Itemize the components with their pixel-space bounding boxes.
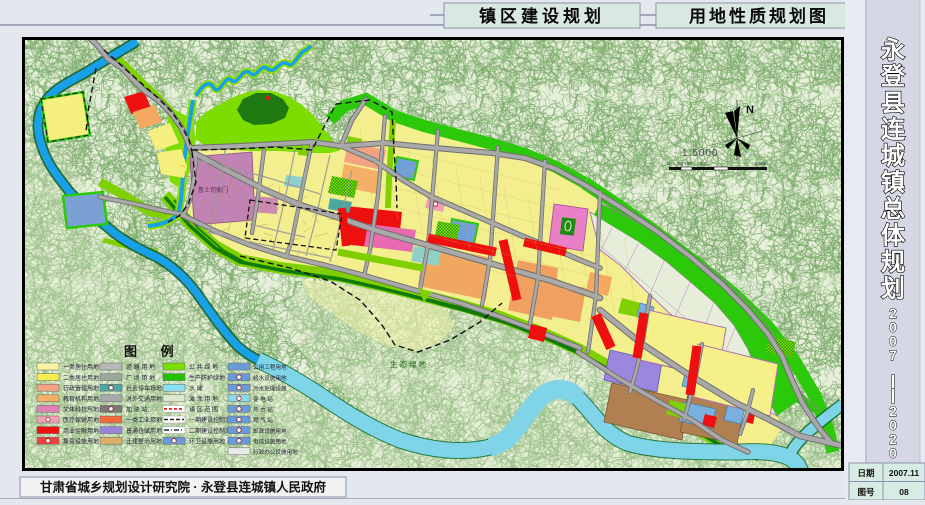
- svg-text:环卫设施用地: 环卫设施用地: [189, 437, 225, 445]
- svg-text:给水设施用地: 给水设施用地: [253, 374, 287, 382]
- svg-text:电信设施用地: 电信设施用地: [253, 437, 287, 445]
- svg-text:登: 登: [880, 64, 906, 91]
- svg-text:加 油 站: 加 油 站: [126, 406, 147, 414]
- svg-text:镇区建设规划: 镇区建设规划: [479, 6, 605, 26]
- svg-text:0: 0: [889, 320, 897, 335]
- svg-text:日期: 日期: [857, 468, 875, 478]
- svg-text:2: 2: [889, 432, 897, 447]
- svg-text:N: N: [746, 104, 754, 116]
- svg-text:0: 0: [889, 418, 897, 433]
- svg-text:划: 划: [881, 276, 905, 303]
- svg-text:迁建整治用地: 迁建整治用地: [126, 437, 162, 445]
- svg-text:二类居住用地: 二类居住用地: [63, 374, 99, 382]
- svg-text:水 域: 水 域: [189, 384, 203, 392]
- svg-text:2: 2: [889, 404, 897, 419]
- svg-text:0: 0: [889, 446, 897, 461]
- svg-text:镇 区 范 围: 镇 区 范 围: [189, 406, 218, 414]
- svg-text:滩 涂 用 地: 滩 涂 用 地: [189, 395, 218, 403]
- svg-text:变 电 站: 变 电 站: [253, 395, 273, 403]
- svg-text:200: 200: [700, 161, 708, 166]
- svg-text:生产防护绿地: 生产防护绿地: [189, 374, 225, 382]
- svg-text:热 力 站: 热 力 站: [253, 406, 273, 414]
- svg-text:400m: 400m: [755, 161, 767, 166]
- svg-text:|: |: [891, 387, 895, 404]
- svg-text:教育机构用地: 教育机构用地: [63, 395, 99, 403]
- svg-text:公用工程用地: 公用工程用地: [253, 363, 287, 371]
- svg-text:行政办公设施用地: 行政办公设施用地: [253, 448, 298, 456]
- svg-text:社会停车场地: 社会停车场地: [126, 384, 162, 392]
- svg-text:燃 气 站: 燃 气 站: [253, 416, 273, 424]
- svg-text:一类居住用地: 一类居住用地: [63, 363, 99, 371]
- svg-text:2007.11: 2007.11: [889, 468, 920, 478]
- svg-text:公 共 绿 地: 公 共 绿 地: [189, 363, 218, 371]
- svg-text:道 路 用 地: 道 路 用 地: [126, 363, 155, 371]
- svg-text:对外交通用地: 对外交通用地: [126, 395, 162, 403]
- svg-text:县: 县: [881, 90, 905, 117]
- svg-text:鲁土司衙门: 鲁土司衙门: [198, 186, 228, 194]
- svg-text:一类工业用地: 一类工业用地: [126, 416, 162, 424]
- svg-text:甘肃省城乡规划设计研究院 · 永登县连城镇人民政府: 甘肃省城乡规划设计研究院 · 永登县连城镇人民政府: [40, 480, 327, 495]
- svg-text:邮政设施用地: 邮政设施用地: [253, 427, 287, 435]
- svg-text:总: 总: [881, 195, 905, 223]
- svg-text:污水处理设施: 污水处理设施: [253, 384, 287, 392]
- svg-text:0: 0: [889, 334, 897, 349]
- svg-text:图号: 图号: [857, 487, 875, 497]
- svg-text:1:5000: 1:5000: [682, 148, 719, 159]
- svg-text:行政管理用地: 行政管理用地: [63, 384, 99, 392]
- svg-text:文体科技用地: 文体科技用地: [63, 406, 99, 414]
- svg-text:图 例: 图 例: [124, 344, 184, 359]
- svg-text:普通仓储用地: 普通仓储用地: [126, 427, 162, 435]
- svg-text:生态绿地: 生态绿地: [390, 359, 428, 369]
- svg-text:城: 城: [881, 142, 905, 170]
- svg-text:医疗保健用地: 医疗保健用地: [63, 416, 99, 424]
- svg-text:50 100: 50 100: [678, 161, 692, 166]
- svg-text:体: 体: [881, 223, 906, 250]
- svg-text:镇: 镇: [881, 170, 905, 197]
- svg-text:商业金融用地: 商业金融用地: [63, 427, 99, 435]
- svg-text:连: 连: [881, 116, 906, 144]
- svg-text:2: 2: [889, 306, 897, 321]
- svg-text:集贸设施用地: 集贸设施用地: [63, 437, 99, 445]
- svg-text:用地性质规划图: 用地性质规划图: [689, 6, 829, 26]
- svg-text:永: 永: [881, 37, 905, 64]
- svg-text:规: 规: [881, 249, 905, 276]
- svg-text:7: 7: [889, 348, 897, 363]
- svg-text:广 场 用 地: 广 场 用 地: [126, 374, 155, 382]
- svg-text:08: 08: [899, 487, 909, 497]
